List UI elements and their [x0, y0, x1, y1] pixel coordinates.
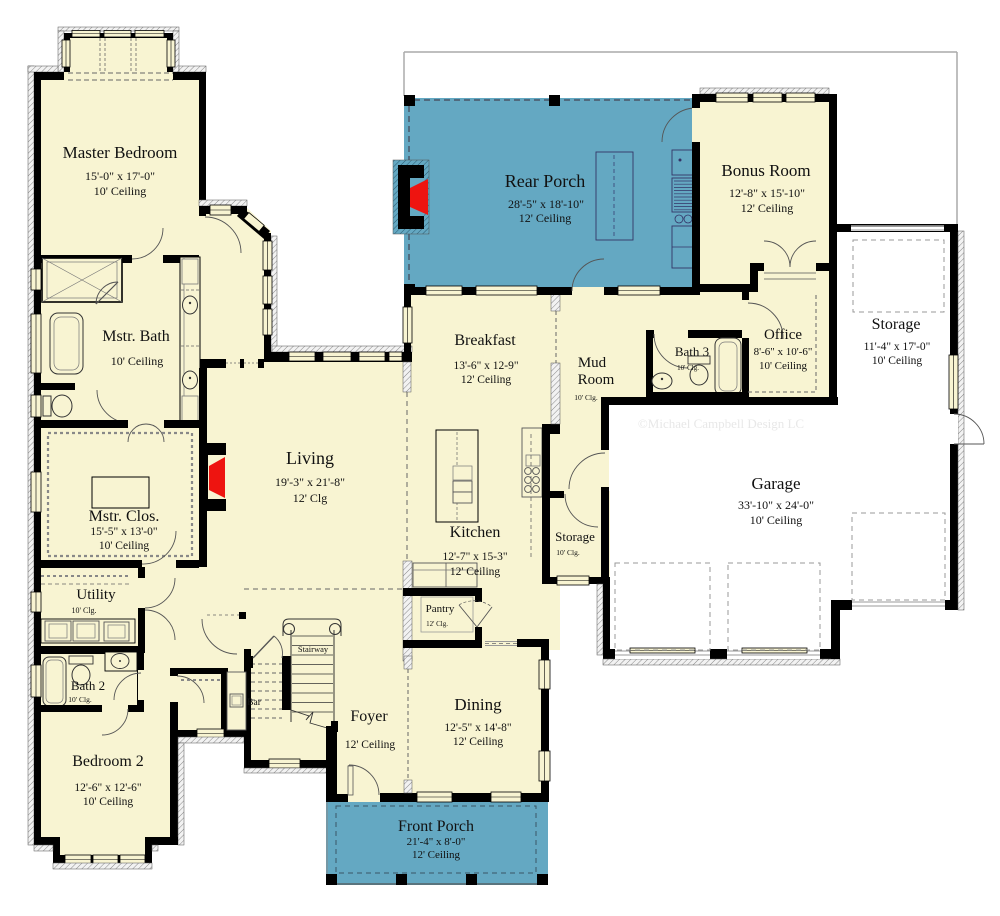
svg-text:10' Clg.: 10' Clg.: [556, 548, 580, 557]
svg-text:Front Porch: Front Porch: [398, 818, 474, 835]
svg-text:28'-5" x 18'-10": 28'-5" x 18'-10": [508, 197, 584, 211]
svg-text:Foyer: Foyer: [350, 708, 388, 725]
svg-text:15'-5" x 13'-0": 15'-5" x 13'-0": [90, 526, 157, 538]
svg-text:10' Clg.: 10' Clg.: [72, 606, 97, 615]
svg-text:10' Ceiling: 10' Ceiling: [872, 355, 923, 367]
svg-text:12'-6" x 12'-6": 12'-6" x 12'-6": [74, 782, 141, 794]
svg-text:Pantry: Pantry: [426, 603, 455, 615]
svg-text:Master Bedroom: Master Bedroom: [63, 143, 178, 162]
svg-text:12' Ceiling: 12' Ceiling: [450, 566, 501, 578]
svg-text:Dining: Dining: [454, 695, 502, 714]
svg-text:33'-10" x 24'-0": 33'-10" x 24'-0": [738, 498, 814, 512]
svg-text:Kitchen: Kitchen: [450, 524, 501, 541]
svg-text:Storage: Storage: [872, 316, 921, 333]
svg-text:12'-7" x 15-3": 12'-7" x 15-3": [442, 551, 507, 563]
svg-text:Stairway: Stairway: [298, 644, 329, 654]
svg-text:11'-4" x 17'-0": 11'-4" x 17'-0": [864, 341, 931, 353]
svg-text:13'-6" x 12-9": 13'-6" x 12-9": [453, 360, 518, 372]
svg-text:12' Ceiling: 12' Ceiling: [412, 849, 461, 861]
svg-text:10' Ceiling: 10' Ceiling: [759, 360, 808, 372]
svg-text:10' Ceiling: 10' Ceiling: [750, 513, 803, 527]
svg-text:Living: Living: [286, 448, 334, 468]
svg-text:10' Clg.: 10' Clg.: [677, 364, 699, 372]
svg-text:Mud: Mud: [578, 355, 607, 371]
svg-text:12' Ceiling: 12' Ceiling: [519, 211, 572, 225]
svg-text:Storage: Storage: [555, 529, 595, 544]
svg-text:Mstr. Bath: Mstr. Bath: [102, 328, 170, 345]
svg-text:Bath 3: Bath 3: [675, 344, 709, 359]
svg-text:Office: Office: [764, 327, 802, 343]
svg-text:Bedroom 2: Bedroom 2: [72, 753, 144, 770]
svg-text:12'-5" x 14'-8": 12'-5" x 14'-8": [444, 722, 511, 734]
svg-text:10' Clg.: 10' Clg.: [574, 393, 598, 402]
svg-text:15'-0" x 17'-0": 15'-0" x 17'-0": [85, 169, 155, 183]
svg-text:12' Clg.: 12' Clg.: [426, 620, 448, 628]
svg-text:12' Clg: 12' Clg: [293, 491, 328, 505]
svg-text:8'-6" x 10'-6": 8'-6" x 10'-6": [754, 346, 813, 358]
svg-text:21'-4" x 8'-0": 21'-4" x 8'-0": [407, 836, 466, 848]
svg-text:Bonus Room: Bonus Room: [721, 161, 810, 180]
svg-text:Garage: Garage: [751, 474, 800, 493]
svg-text:12' Ceiling: 12' Ceiling: [453, 736, 504, 748]
svg-text:19'-3" x 21'-8": 19'-3" x 21'-8": [275, 475, 345, 489]
svg-text:©Michael Campbell Design LC: ©Michael Campbell Design LC: [638, 416, 804, 431]
svg-text:Mstr. Clos.: Mstr. Clos.: [89, 508, 160, 525]
svg-text:10' Ceiling: 10' Ceiling: [94, 184, 147, 198]
svg-text:Bath 2: Bath 2: [71, 678, 105, 693]
svg-text:Rear Porch: Rear Porch: [505, 171, 585, 191]
svg-text:10' Ceiling: 10' Ceiling: [99, 540, 150, 552]
svg-text:12' Ceiling: 12' Ceiling: [741, 201, 794, 215]
svg-text:10' Ceiling: 10' Ceiling: [111, 354, 164, 368]
svg-text:10' Ceiling: 10' Ceiling: [83, 796, 134, 808]
svg-text:12' Ceiling: 12' Ceiling: [345, 739, 396, 751]
svg-text:12'-8" x 15'-10": 12'-8" x 15'-10": [729, 186, 805, 200]
svg-text:Breakfast: Breakfast: [454, 332, 516, 349]
svg-text:Utility: Utility: [76, 587, 116, 603]
svg-text:10' Clg.: 10' Clg.: [68, 695, 92, 704]
svg-text:Room: Room: [578, 372, 615, 388]
svg-text:12' Ceiling: 12' Ceiling: [461, 374, 512, 386]
